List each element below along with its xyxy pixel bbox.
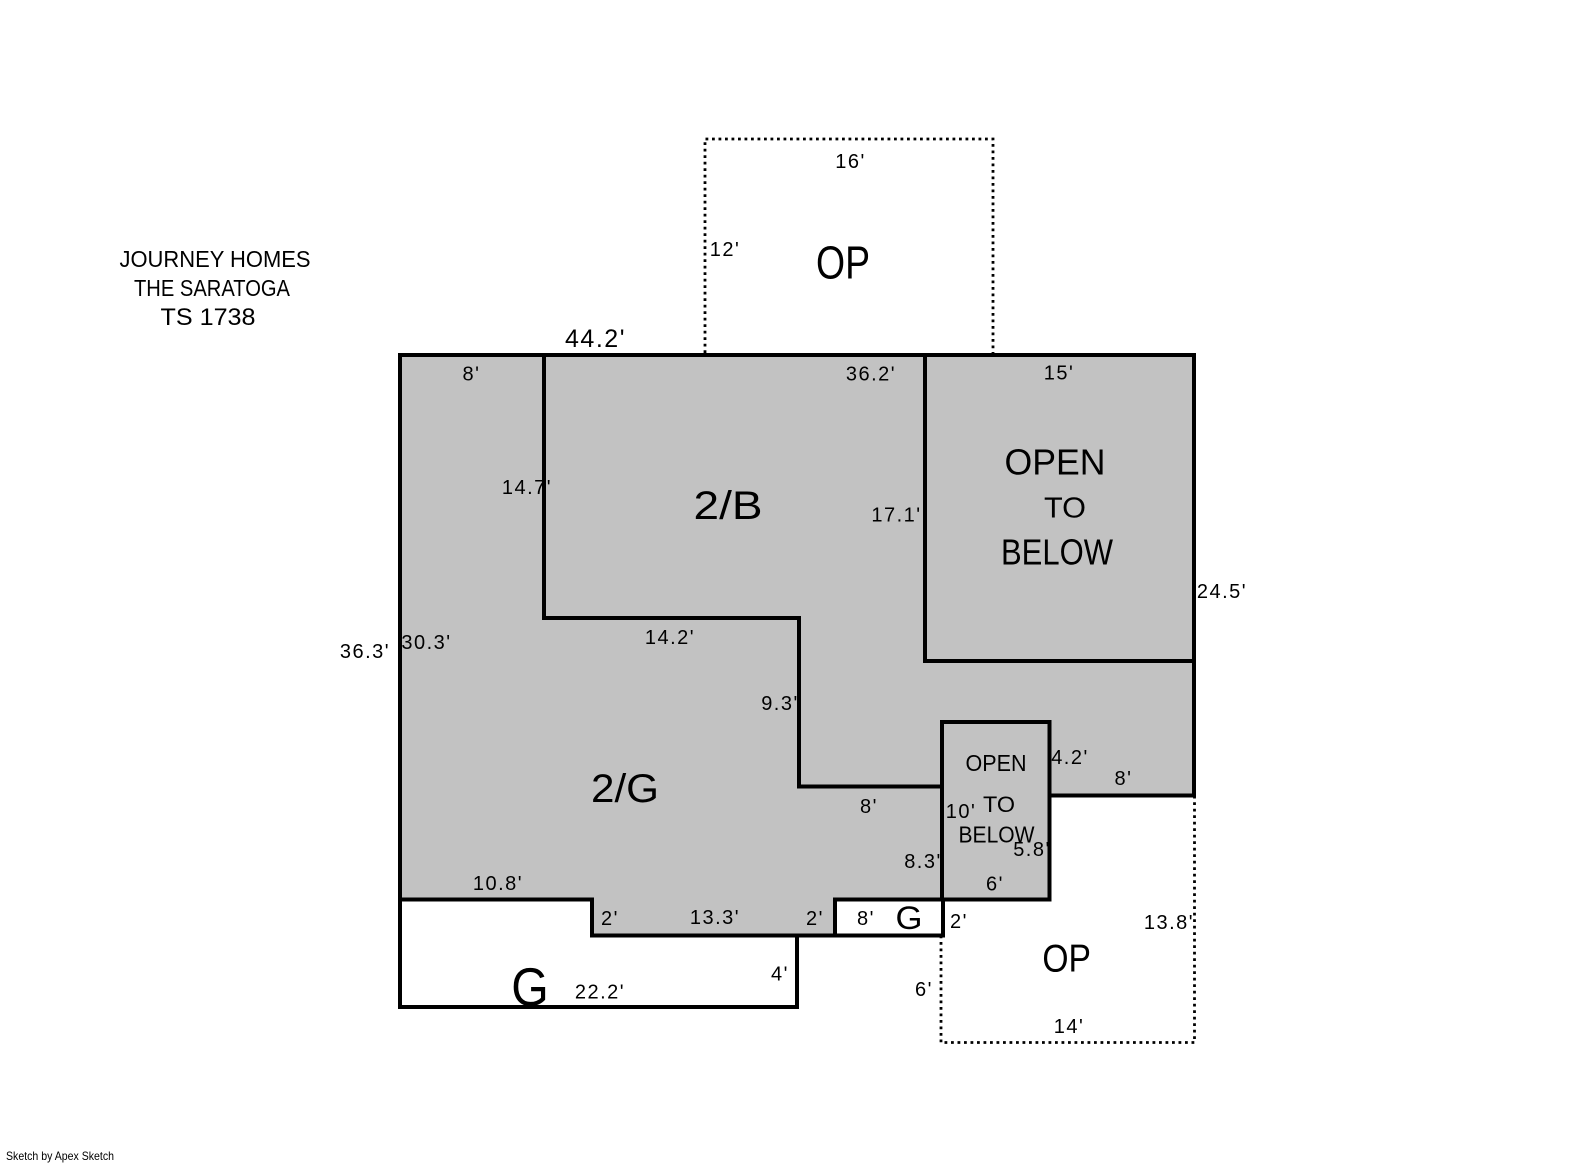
svg-text:14.7': 14.7'	[502, 477, 552, 499]
svg-text:8': 8'	[860, 796, 878, 818]
svg-text:22.2': 22.2'	[575, 982, 625, 1004]
svg-text:10': 10'	[946, 801, 977, 823]
svg-text:TO: TO	[1044, 493, 1086, 525]
svg-text:4.2': 4.2'	[1051, 747, 1089, 769]
svg-text:8': 8'	[857, 908, 875, 930]
svg-text:10.8': 10.8'	[473, 873, 523, 895]
svg-text:OP: OP	[1042, 938, 1091, 981]
svg-text:16': 16'	[835, 151, 866, 173]
svg-text:G: G	[896, 900, 923, 936]
svg-text:6': 6'	[915, 979, 933, 1001]
svg-text:TO: TO	[983, 792, 1015, 817]
svg-text:8.3': 8.3'	[904, 851, 942, 873]
svg-text:2': 2'	[601, 908, 619, 930]
svg-text:44.2': 44.2'	[565, 325, 626, 353]
svg-text:30.3': 30.3'	[401, 632, 451, 654]
svg-text:2/B: 2/B	[694, 484, 763, 528]
svg-text:9.3': 9.3'	[761, 693, 799, 715]
svg-text:OPEN: OPEN	[1005, 442, 1106, 483]
svg-text:13.8': 13.8'	[1144, 912, 1194, 934]
svg-text:5.8': 5.8'	[1013, 839, 1051, 861]
svg-text:8': 8'	[463, 364, 481, 386]
svg-text:OP: OP	[816, 237, 870, 289]
svg-text:13.3': 13.3'	[690, 907, 740, 929]
svg-text:14.2': 14.2'	[645, 627, 695, 649]
svg-text:G: G	[511, 958, 549, 1018]
svg-text:14': 14'	[1054, 1016, 1085, 1038]
svg-text:36.3': 36.3'	[340, 641, 390, 663]
svg-text:THE SARATOGA: THE SARATOGA	[134, 275, 291, 301]
svg-text:2/G: 2/G	[591, 767, 659, 811]
svg-text:2': 2'	[950, 911, 968, 933]
svg-text:17.1': 17.1'	[871, 505, 921, 527]
svg-text:JOURNEY HOMES: JOURNEY HOMES	[120, 246, 311, 272]
svg-text:TS 1738: TS 1738	[161, 304, 256, 331]
svg-text:OPEN: OPEN	[966, 750, 1027, 776]
svg-text:BELOW: BELOW	[1001, 532, 1113, 573]
svg-text:Sketch by Apex Sketch: Sketch by Apex Sketch	[6, 1149, 114, 1163]
svg-text:24.5': 24.5'	[1197, 581, 1247, 603]
svg-text:6': 6'	[986, 874, 1004, 896]
svg-text:15': 15'	[1044, 363, 1075, 385]
svg-text:12': 12'	[710, 239, 741, 261]
svg-text:8': 8'	[1115, 768, 1133, 790]
svg-text:4': 4'	[771, 964, 789, 986]
svg-text:2': 2'	[806, 908, 824, 930]
svg-text:36.2': 36.2'	[846, 364, 896, 386]
